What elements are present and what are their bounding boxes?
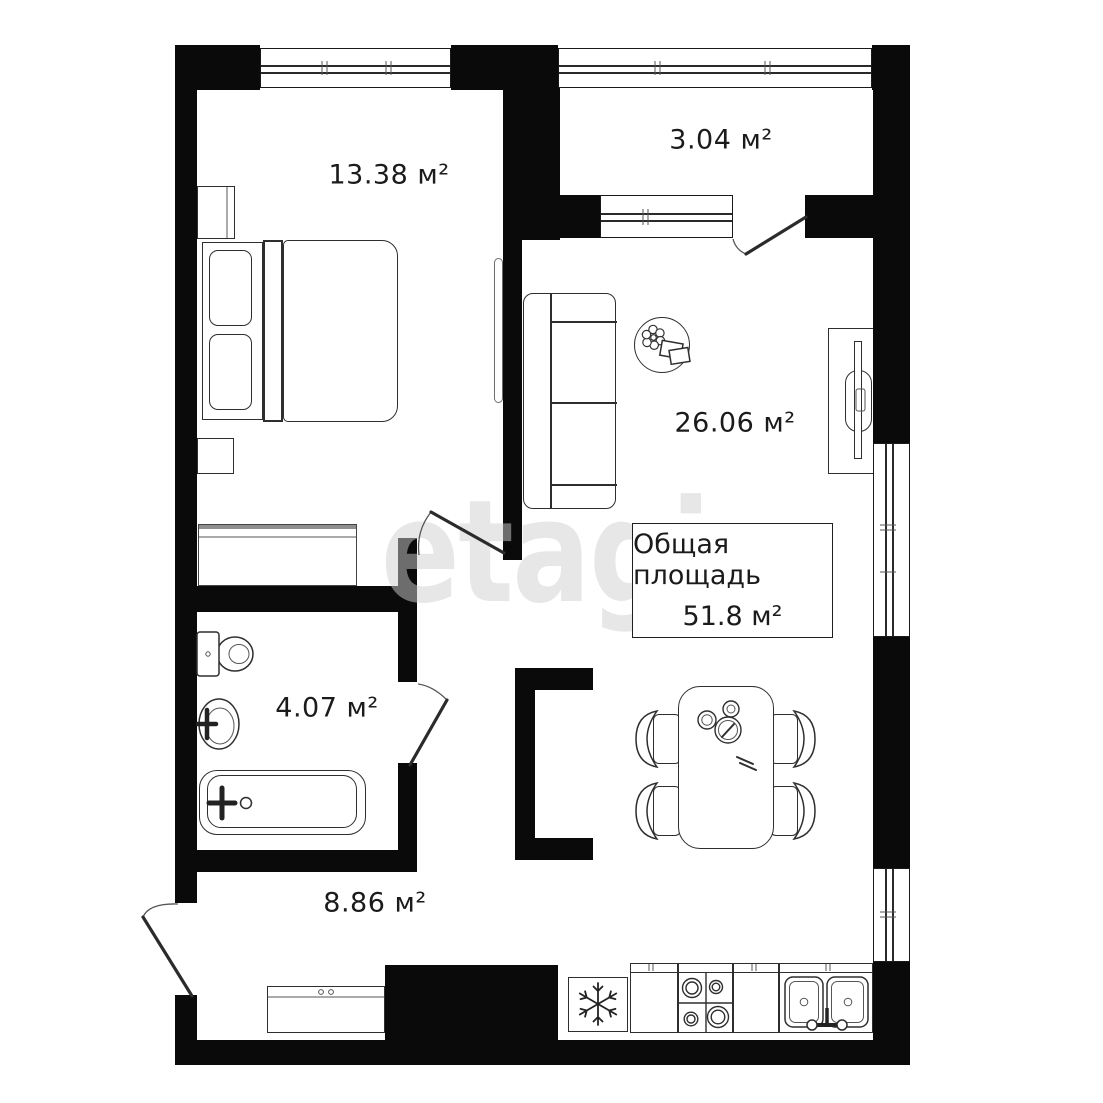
wall-balcony-sw <box>556 195 600 238</box>
window-glass-line <box>261 72 450 74</box>
bathroom-door-swing-icon <box>410 684 447 765</box>
sofa-cushion-line <box>550 402 617 404</box>
nightstand-bottom <box>197 438 234 474</box>
wall-left-upper <box>175 45 197 903</box>
wall-top-middle <box>451 45 558 90</box>
bathroom-area-label: 4.07 м² <box>275 693 378 724</box>
chair-seat-right-top <box>770 714 798 764</box>
floor-plan: 13.38 м² 3.04 м² 26.06 м² 4.07 м² 8.86 м… <box>0 0 1103 1103</box>
sofa-armrest-top-line <box>550 321 617 323</box>
window-glass-line <box>885 869 887 961</box>
bedroom-wardrobe <box>198 524 357 586</box>
total-area-value: 51.8 м² <box>683 601 783 632</box>
window-glass-line <box>559 72 871 74</box>
total-area-title: Общая площадь <box>633 529 832 591</box>
wall-balcony-se <box>805 195 873 238</box>
balcony-inner-window <box>600 195 733 238</box>
total-area-box: Общая площадь 51.8 м² <box>632 523 833 638</box>
pillow-bottom <box>209 334 252 410</box>
balcony-window <box>558 48 872 88</box>
chair-seat-left-top <box>653 714 681 764</box>
counter-top-line <box>630 972 873 973</box>
bedroom-area-label: 13.38 м² <box>328 160 449 191</box>
hallway-area-label: 8.86 м² <box>323 888 426 919</box>
pillow-top <box>209 250 252 326</box>
kitchen-counter-1 <box>630 963 678 1033</box>
kitchen-sink-unit <box>779 963 873 1033</box>
wall-bathroom-south <box>175 850 417 872</box>
bedroom-window <box>260 48 451 88</box>
window-glass-line <box>892 869 894 961</box>
wall-bedroom-balcony-corner <box>503 88 560 240</box>
living-area-label: 26.06 м² <box>674 408 795 439</box>
tv-screen <box>854 341 862 459</box>
fridge <box>568 977 628 1032</box>
wardrobe-open-side <box>199 525 356 529</box>
kitchen-counter-2 <box>733 963 779 1033</box>
washbasin-icon <box>198 699 239 749</box>
round-side-table <box>634 317 690 373</box>
wall-right-upper <box>873 45 910 443</box>
entrance-door-swing-icon <box>143 904 192 996</box>
vent-column-vertical <box>515 668 535 860</box>
chair-seat-left-bottom <box>653 786 681 836</box>
bathtub <box>199 770 366 835</box>
sliding-panel <box>494 258 503 403</box>
bed-mattress <box>283 240 398 422</box>
shoe-cabinet <box>267 986 385 1033</box>
bed-frame-bar <box>263 240 283 422</box>
dining-table <box>678 686 774 849</box>
window-glass-line <box>601 213 732 215</box>
living-room-window <box>873 443 910 637</box>
bathtub-inner <box>207 775 357 828</box>
window-glass-line <box>892 444 894 636</box>
wall-right-middle <box>873 637 910 868</box>
wall-bedroom-south <box>175 586 398 612</box>
stove <box>678 963 733 1033</box>
window-glass-line <box>601 220 732 222</box>
toilet-icon <box>197 632 253 676</box>
nightstand-top <box>197 186 235 239</box>
vent-column-arm-bottom <box>535 838 593 860</box>
balcony-area-label: 3.04 м² <box>669 125 772 156</box>
vent-column-arm-top <box>535 668 593 690</box>
window-glass-line <box>261 65 450 67</box>
kitchen-window <box>873 868 910 962</box>
wall-bathroom-east-lower <box>398 763 417 852</box>
window-glass-line <box>559 65 871 67</box>
balcony-door-swing-icon <box>733 217 806 254</box>
wall-kitchen-block <box>385 965 558 1065</box>
chair-seat-right-bottom <box>770 786 798 836</box>
window-glass-line <box>885 444 887 636</box>
